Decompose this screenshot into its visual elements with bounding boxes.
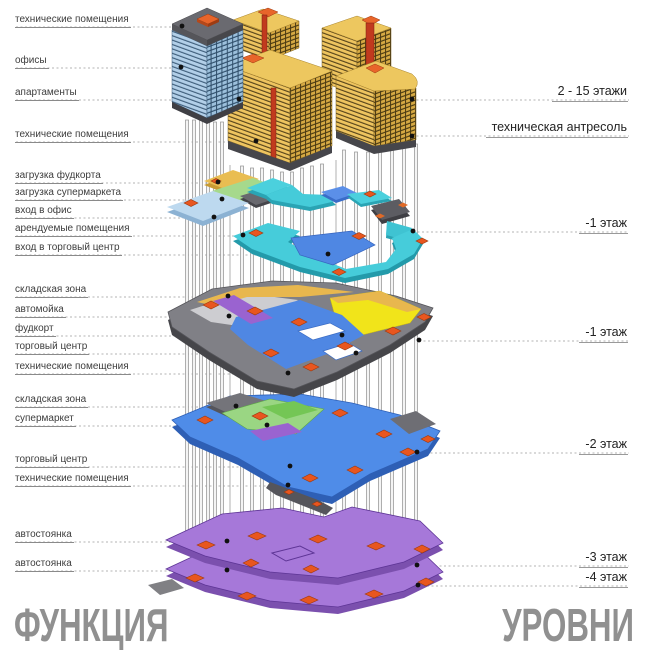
function-label: технические помещения (15, 472, 131, 487)
function-label: торговый центр (15, 340, 89, 355)
function-label: арендуемые помещения (15, 222, 132, 237)
function-label-text: торговый центр (15, 340, 89, 355)
level-label-text: техническая антресоль (486, 120, 628, 138)
level-label: -1 этаж (579, 216, 628, 234)
function-label-text: офисы (15, 54, 49, 69)
function-label-text: технические помещения (15, 128, 131, 143)
function-label-text: автомойка (15, 303, 66, 318)
function-label: автостоянка (15, 557, 74, 572)
function-label: супермаркет (15, 412, 76, 427)
level-label-text: -4 этаж (579, 570, 628, 588)
function-label: автостоянка (15, 528, 74, 543)
function-label-text: технические помещения (15, 360, 131, 375)
function-label: автомойка (15, 303, 66, 318)
function-label-text: складская зона (15, 393, 88, 408)
level-entry (167, 170, 428, 283)
level-label-text: -3 этаж (579, 550, 628, 568)
function-label-text: загрузка фудкорта (15, 169, 103, 184)
function-label: технические помещения (15, 128, 131, 143)
function-label: технические помещения (15, 360, 131, 375)
level-label-text: -2 этаж (579, 437, 628, 455)
function-label-text: вход в офис (15, 204, 74, 219)
function-label-text: апартаменты (15, 86, 79, 101)
function-label-text: автостоянка (15, 528, 74, 543)
function-label-text: складская зона (15, 283, 88, 298)
function-title: ФУНКЦИЯ (14, 598, 168, 650)
function-label: вход в офис (15, 204, 74, 219)
level-label: -3 этаж (579, 550, 628, 568)
function-label-text: вход в торговый центр (15, 241, 122, 256)
function-label: офисы (15, 54, 49, 69)
stair-block (148, 579, 184, 595)
function-label-text: технические помещения (15, 13, 131, 28)
function-label: загрузка супермаркета (15, 186, 123, 201)
exploded-axonometric-page: технические помещения офисы апартаменты … (0, 0, 650, 650)
level-minus2-supermarket (172, 393, 440, 515)
function-label: вход в торговый центр (15, 241, 122, 256)
function-label: торговый центр (15, 453, 89, 468)
function-label-text: технические помещения (15, 472, 131, 487)
function-label: технические помещения (15, 13, 131, 28)
function-label-text: автостоянка (15, 557, 74, 572)
level-label-text: -1 этаж (579, 216, 628, 234)
level-label-text: -1 этаж (579, 325, 628, 343)
level-label: 2 - 15 этажи (552, 84, 628, 102)
function-label: фудкорт (15, 322, 56, 337)
level-label: техническая антресоль (486, 120, 628, 138)
levels-title: УРОВНИ (502, 598, 634, 650)
level-label-text: 2 - 15 этажи (552, 84, 628, 102)
function-label-text: арендуемые помещения (15, 222, 132, 237)
function-label: загрузка фудкорта (15, 169, 103, 184)
level-label: -2 этаж (579, 437, 628, 455)
function-label: складская зона (15, 393, 88, 408)
function-label: складская зона (15, 283, 88, 298)
level-label: -1 этаж (579, 325, 628, 343)
function-label-text: загрузка супермаркета (15, 186, 123, 201)
function-label-text: фудкорт (15, 322, 56, 337)
core-shaft (271, 88, 276, 158)
function-label-text: супермаркет (15, 412, 76, 427)
function-label-text: торговый центр (15, 453, 89, 468)
function-label: апартаменты (15, 86, 79, 101)
level-label: -4 этаж (579, 570, 628, 588)
